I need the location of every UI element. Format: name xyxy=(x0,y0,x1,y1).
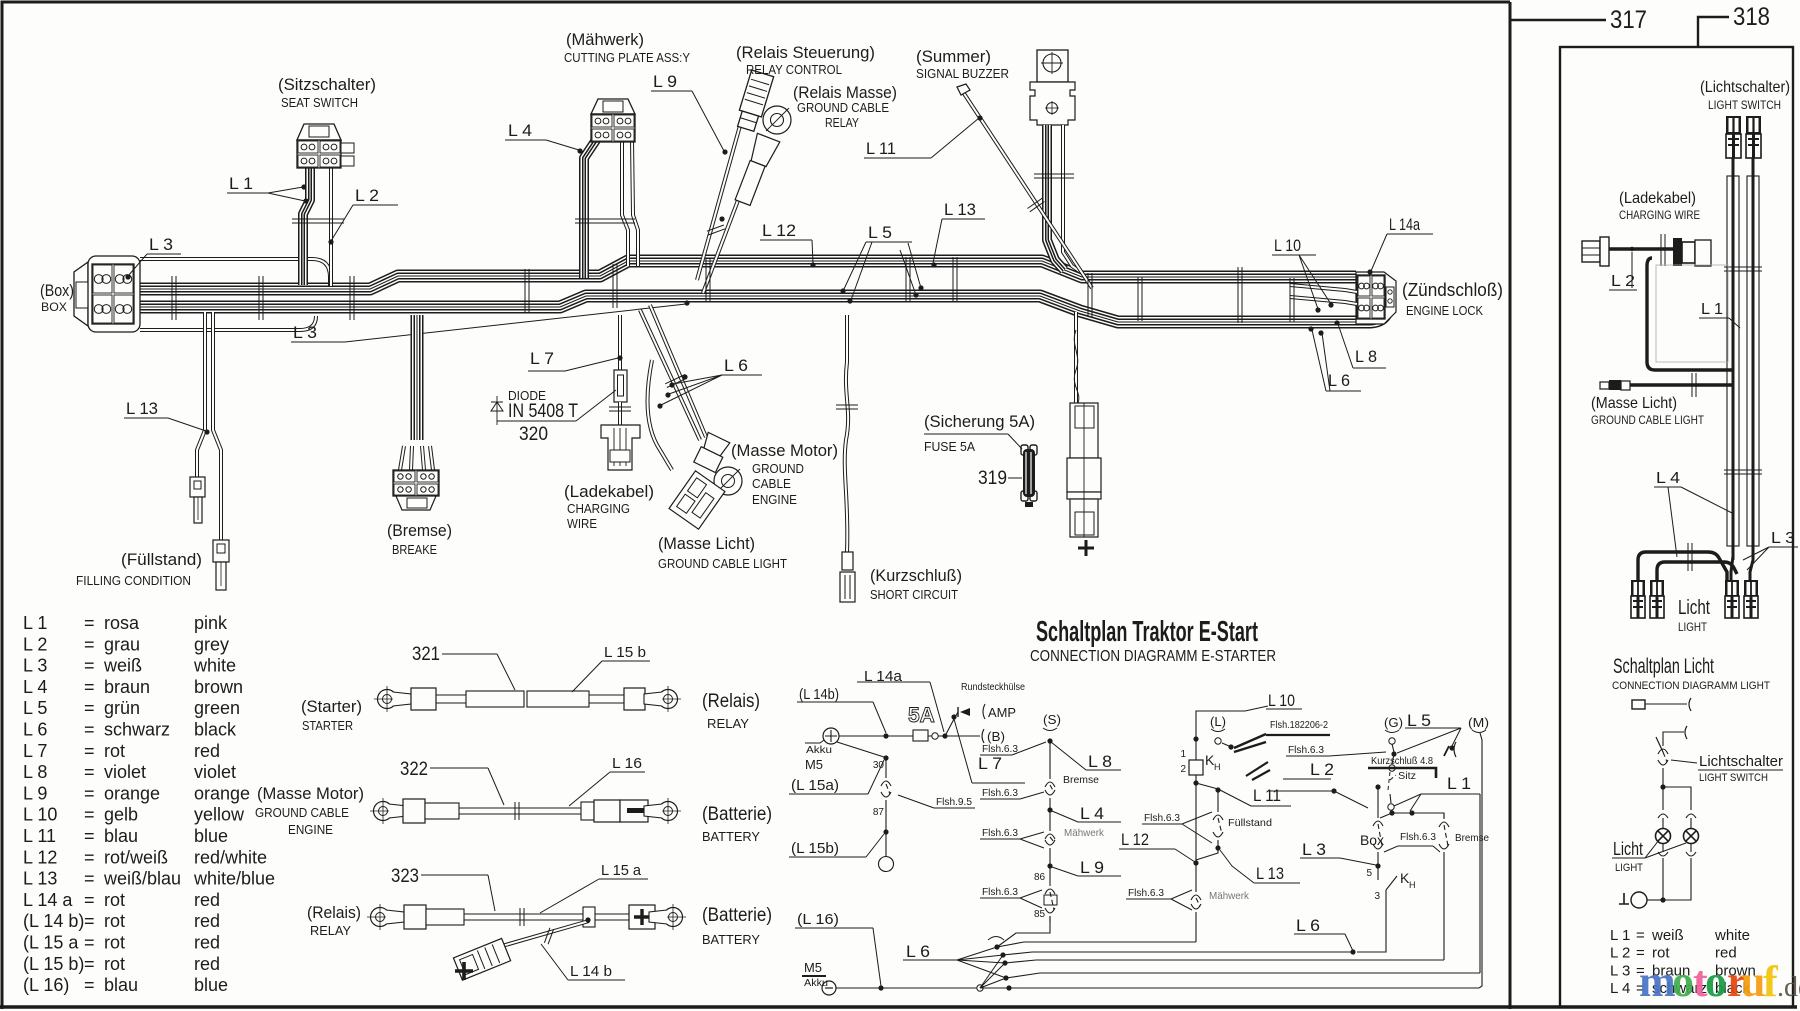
svg-text:weiß: weiß xyxy=(1651,927,1684,944)
svg-text:(L 15 b): (L 15 b) xyxy=(23,954,84,974)
svg-text:(Batterie): (Batterie) xyxy=(702,804,772,825)
svg-text:(S): (S) xyxy=(1043,712,1061,727)
svg-text:L 13: L 13 xyxy=(1256,864,1284,883)
svg-text:L 3: L 3 xyxy=(1771,530,1795,547)
svg-text:schwarz: schwarz xyxy=(104,720,170,740)
svg-text:(Relais Steuerung): (Relais Steuerung) xyxy=(736,43,875,62)
svg-text:(Ladekabel): (Ladekabel) xyxy=(564,482,654,501)
svg-text:L 14 a: L 14 a xyxy=(23,890,73,910)
svg-text:(L 14b): (L 14b) xyxy=(799,686,839,703)
svg-text:L 11: L 11 xyxy=(1253,786,1281,805)
svg-text:L 6: L 6 xyxy=(23,720,47,740)
svg-text:M5: M5 xyxy=(804,960,822,975)
svg-text:violet: violet xyxy=(194,762,236,782)
svg-text:L 1: L 1 xyxy=(1701,301,1723,318)
svg-text:L 2: L 2 xyxy=(355,186,379,205)
svg-text:yellow: yellow xyxy=(194,805,245,825)
svg-text:BREAKE: BREAKE xyxy=(392,543,437,557)
svg-text:rot: rot xyxy=(104,890,125,910)
svg-text:weiß: weiß xyxy=(103,656,142,676)
svg-text:SIGNAL BUZZER: SIGNAL BUZZER xyxy=(916,67,1009,81)
svg-text:L 1: L 1 xyxy=(23,613,47,633)
svg-text:L 2: L 2 xyxy=(1610,945,1630,962)
svg-text:L 7: L 7 xyxy=(23,741,47,761)
svg-text:(Mähwerk): (Mähwerk) xyxy=(566,30,644,49)
svg-text:L 3: L 3 xyxy=(23,656,47,676)
svg-text:L 1: L 1 xyxy=(1610,927,1630,944)
svg-text:L 15 b: L 15 b xyxy=(604,644,646,661)
svg-text:braun: braun xyxy=(104,677,150,697)
svg-text:SHORT CIRCUIT: SHORT CIRCUIT xyxy=(870,588,958,602)
svg-text:STARTER: STARTER xyxy=(302,719,353,733)
svg-text:blue: blue xyxy=(194,975,228,995)
svg-text:AMP: AMP xyxy=(988,705,1016,720)
svg-text:rot: rot xyxy=(104,954,125,974)
svg-text:GROUND CABLE: GROUND CABLE xyxy=(255,806,349,820)
svg-text:blau: blau xyxy=(104,826,138,846)
svg-text:black: black xyxy=(194,720,237,740)
svg-text:o: o xyxy=(1705,957,1727,1006)
svg-text:CONNECTION DIAGRAMM LIGHT: CONNECTION DIAGRAMM LIGHT xyxy=(1612,680,1770,692)
svg-text:green: green xyxy=(194,698,240,718)
svg-text:Flsh.6.3: Flsh.6.3 xyxy=(982,887,1018,898)
svg-text:L 4: L 4 xyxy=(1080,804,1104,823)
svg-text:(L 15b): (L 15b) xyxy=(791,840,839,857)
svg-text:L 15 a: L 15 a xyxy=(601,862,642,879)
svg-text:u: u xyxy=(1741,957,1765,1006)
svg-text:L 5: L 5 xyxy=(23,698,47,718)
svg-text:L 2: L 2 xyxy=(1611,273,1635,290)
svg-text:Mähwerk: Mähwerk xyxy=(1064,827,1105,839)
svg-text:L 3: L 3 xyxy=(293,323,317,342)
svg-text:L 8: L 8 xyxy=(1355,347,1377,366)
svg-text:5A: 5A xyxy=(908,704,935,727)
svg-text:GROUND CABLE LIGHT: GROUND CABLE LIGHT xyxy=(658,557,787,571)
svg-text:1: 1 xyxy=(1180,749,1186,760)
svg-text:white: white xyxy=(1714,927,1750,944)
svg-text:LIGHT SWITCH: LIGHT SWITCH xyxy=(1699,772,1768,784)
svg-text:CUTTING PLATE ASS:Y: CUTTING PLATE ASS:Y xyxy=(564,51,691,65)
svg-text:L 9: L 9 xyxy=(653,72,677,91)
svg-text:CONNECTION DIAGRAMM E-STARTER: CONNECTION DIAGRAMM E-STARTER xyxy=(1030,648,1276,665)
svg-text:L 14 b: L 14 b xyxy=(570,963,612,980)
svg-text:red: red xyxy=(194,890,220,910)
svg-text:L 6: L 6 xyxy=(1296,916,1320,935)
svg-text:weiß/blau: weiß/blau xyxy=(103,869,181,889)
svg-text:GROUND CABLE LIGHT: GROUND CABLE LIGHT xyxy=(1591,413,1705,427)
svg-text:Bremse: Bremse xyxy=(1063,774,1099,786)
svg-text:L 3: L 3 xyxy=(1610,962,1630,979)
svg-text:=: = xyxy=(84,954,95,974)
svg-text:=: = xyxy=(84,975,95,995)
svg-text:=: = xyxy=(84,613,95,633)
svg-text:320: 320 xyxy=(519,424,548,445)
svg-text:(L 16): (L 16) xyxy=(797,911,839,928)
svg-text:ENGINE: ENGINE xyxy=(752,493,797,507)
svg-text:317: 317 xyxy=(1610,6,1647,34)
svg-text:322: 322 xyxy=(400,759,428,780)
svg-text:blue: blue xyxy=(194,826,228,846)
svg-text:=: = xyxy=(84,762,95,782)
svg-text:brown: brown xyxy=(194,677,243,697)
svg-text:white: white xyxy=(193,656,236,676)
svg-text:L 8: L 8 xyxy=(1088,752,1112,771)
svg-text:L 5: L 5 xyxy=(1407,711,1431,730)
svg-text:M5: M5 xyxy=(805,757,823,772)
svg-text:(Zündschloß): (Zündschloß) xyxy=(1402,280,1503,300)
svg-text:=: = xyxy=(84,720,95,740)
svg-text:=: = xyxy=(84,634,95,654)
svg-text:L 12: L 12 xyxy=(1121,830,1149,849)
svg-text:L 4: L 4 xyxy=(1656,470,1680,487)
svg-text:Akku: Akku xyxy=(806,745,832,756)
svg-text:(Masse Motor): (Masse Motor) xyxy=(257,784,364,803)
svg-text:Schaltplan Licht: Schaltplan Licht xyxy=(1613,655,1714,678)
svg-text:LIGHT: LIGHT xyxy=(1615,862,1643,874)
svg-text:(Relais Masse): (Relais Masse) xyxy=(793,83,897,102)
svg-text:=: = xyxy=(84,847,95,867)
svg-text:(L 14 b): (L 14 b) xyxy=(23,911,84,931)
svg-text:WIRE: WIRE xyxy=(567,517,597,531)
svg-text:Sitz: Sitz xyxy=(1398,770,1416,782)
svg-text:L 13: L 13 xyxy=(126,399,158,418)
svg-text:red/white: red/white xyxy=(194,847,267,867)
svg-text:Mähwerk: Mähwerk xyxy=(1209,890,1250,902)
svg-text:321: 321 xyxy=(412,644,440,665)
svg-text:(L): (L) xyxy=(1210,714,1226,729)
svg-text:grün: grün xyxy=(104,698,140,718)
svg-text:86: 86 xyxy=(1034,872,1046,883)
svg-text:H: H xyxy=(1214,762,1221,772)
svg-text:red: red xyxy=(194,933,220,953)
svg-text:318: 318 xyxy=(1733,3,1770,31)
svg-text:87: 87 xyxy=(873,807,885,818)
svg-text:L 10: L 10 xyxy=(1274,236,1301,255)
svg-text:red: red xyxy=(194,911,220,931)
svg-text:L 8: L 8 xyxy=(23,762,47,782)
svg-text:L 3: L 3 xyxy=(1302,840,1326,859)
svg-text:(Masse Licht): (Masse Licht) xyxy=(658,534,755,553)
svg-text:=: = xyxy=(84,805,95,825)
svg-text:L 7: L 7 xyxy=(530,349,554,368)
svg-text:L 2: L 2 xyxy=(23,634,47,654)
svg-text:(B): (B) xyxy=(987,729,1005,744)
svg-text:L 6: L 6 xyxy=(906,942,930,961)
svg-text:L 12: L 12 xyxy=(762,221,796,240)
svg-text:Kurzschluß 4.8: Kurzschluß 4.8 xyxy=(1371,755,1433,767)
svg-text:=: = xyxy=(84,890,95,910)
svg-text:BOX: BOX xyxy=(41,300,67,314)
svg-text:L 11: L 11 xyxy=(23,826,56,846)
svg-text:RELAY CONTROL: RELAY CONTROL xyxy=(746,63,842,77)
svg-text:(Summer): (Summer) xyxy=(916,47,991,66)
svg-text:blau: blau xyxy=(104,975,138,995)
svg-text:ENGINE: ENGINE xyxy=(288,823,333,837)
svg-text:323: 323 xyxy=(391,866,419,887)
svg-text:=: = xyxy=(84,911,95,931)
svg-text:gelb: gelb xyxy=(104,805,138,825)
svg-text:L 10: L 10 xyxy=(1268,691,1295,710)
svg-text:(Ladekabel): (Ladekabel) xyxy=(1619,190,1696,207)
svg-text:L 14a: L 14a xyxy=(1389,215,1420,234)
svg-text:RELAY: RELAY xyxy=(310,924,352,938)
svg-text:ENGINE LOCK: ENGINE LOCK xyxy=(1406,304,1484,318)
svg-text:L 6: L 6 xyxy=(1328,371,1350,390)
svg-text:=: = xyxy=(1636,927,1645,944)
svg-text:2: 2 xyxy=(1180,764,1186,775)
svg-text:CHARGING: CHARGING xyxy=(567,502,630,516)
svg-text:CHARGING WIRE: CHARGING WIRE xyxy=(1619,208,1700,222)
svg-text:=: = xyxy=(84,933,95,953)
svg-text:=: = xyxy=(84,826,95,846)
svg-text:RELAY: RELAY xyxy=(707,716,749,731)
svg-text:orange: orange xyxy=(104,783,160,803)
svg-text:(Sitzschalter): (Sitzschalter) xyxy=(278,75,376,94)
svg-text:red: red xyxy=(194,741,220,761)
svg-text:L 13: L 13 xyxy=(944,200,976,219)
svg-text:L 13: L 13 xyxy=(23,869,57,889)
svg-text:(Relais): (Relais) xyxy=(702,691,760,712)
svg-text:rot: rot xyxy=(104,911,125,931)
svg-text:L 1: L 1 xyxy=(1447,774,1471,793)
svg-text:rot/weiß: rot/weiß xyxy=(104,847,168,867)
svg-text:white/blue: white/blue xyxy=(193,869,275,889)
svg-text:(Lichtschalter): (Lichtschalter) xyxy=(1700,79,1790,96)
svg-text:(Masse Motor): (Masse Motor) xyxy=(731,441,838,460)
svg-text:=: = xyxy=(84,698,95,718)
svg-text:L 4: L 4 xyxy=(23,677,47,697)
svg-text:85: 85 xyxy=(1034,909,1046,920)
svg-text:(Relais): (Relais) xyxy=(307,903,361,922)
svg-text:(Kurzschluß): (Kurzschluß) xyxy=(870,566,962,585)
svg-text:Licht: Licht xyxy=(1613,839,1643,859)
svg-text:(L 15a): (L 15a) xyxy=(791,777,839,794)
svg-text:BATTERY: BATTERY xyxy=(702,829,760,844)
svg-text:grey: grey xyxy=(194,634,229,654)
svg-text:(L 16): (L 16) xyxy=(23,975,69,995)
svg-text:=: = xyxy=(84,741,95,761)
svg-text:IN 5408 T: IN 5408 T xyxy=(508,401,578,422)
svg-text:(Batterie): (Batterie) xyxy=(702,905,772,926)
svg-text:Flsh.6.3: Flsh.6.3 xyxy=(1288,745,1324,756)
svg-text:L 3: L 3 xyxy=(149,235,173,254)
svg-text:L 10: L 10 xyxy=(23,805,57,825)
svg-text:grau: grau xyxy=(104,634,140,654)
svg-text:L 4: L 4 xyxy=(1610,980,1630,997)
svg-text:GROUND: GROUND xyxy=(752,462,804,476)
svg-text:pink: pink xyxy=(194,613,228,633)
svg-text:LIGHT: LIGHT xyxy=(1678,620,1708,634)
svg-text:(Sicherung 5A): (Sicherung 5A) xyxy=(924,412,1035,431)
svg-text:L 11: L 11 xyxy=(866,139,896,158)
svg-text:(G): (G) xyxy=(1384,715,1403,730)
svg-text:Flsh.6.3: Flsh.6.3 xyxy=(1128,888,1164,899)
svg-text:L 2: L 2 xyxy=(1310,760,1334,779)
svg-text:L 6: L 6 xyxy=(724,356,748,375)
svg-text:GROUND CABLE: GROUND CABLE xyxy=(797,101,889,115)
svg-text:rot: rot xyxy=(104,933,125,953)
svg-text:Lichtschalter: Lichtschalter xyxy=(1699,753,1783,770)
svg-text:3: 3 xyxy=(1374,891,1380,902)
svg-text:(Starter): (Starter) xyxy=(301,697,362,716)
svg-text:BATTERY: BATTERY xyxy=(702,932,760,947)
svg-text:rot: rot xyxy=(104,741,125,761)
svg-text:FUSE 5A: FUSE 5A xyxy=(924,440,976,454)
svg-text:Rundsteckhülse: Rundsteckhülse xyxy=(961,682,1025,693)
svg-text:Flsh.6.3: Flsh.6.3 xyxy=(982,788,1018,799)
svg-text:Box: Box xyxy=(1360,832,1384,848)
svg-text:(Masse Licht): (Masse Licht) xyxy=(1591,395,1677,412)
svg-text:(Box): (Box) xyxy=(40,281,74,300)
svg-text:=: = xyxy=(84,783,95,803)
svg-text:(Bremse): (Bremse) xyxy=(387,521,452,540)
svg-text:(L 15 a: (L 15 a xyxy=(23,933,79,953)
svg-text:Bremse: Bremse xyxy=(1455,832,1489,844)
svg-text:L 9: L 9 xyxy=(23,783,47,803)
svg-text:=: = xyxy=(84,869,95,889)
svg-text:L 7: L 7 xyxy=(978,754,1002,773)
svg-text:Füllstand: Füllstand xyxy=(1228,817,1272,829)
svg-text:=: = xyxy=(84,677,95,697)
svg-text:Flsh.6.3: Flsh.6.3 xyxy=(1400,832,1436,843)
svg-text:red: red xyxy=(194,954,220,974)
svg-text:RELAY: RELAY xyxy=(825,116,860,130)
svg-text:5: 5 xyxy=(1366,868,1372,879)
svg-text:.de: .de xyxy=(1777,972,1800,1003)
svg-text:Flsh.9.5: Flsh.9.5 xyxy=(936,797,972,808)
svg-text:o: o xyxy=(1672,957,1694,1006)
svg-text:=: = xyxy=(84,656,95,676)
svg-text:(Füllstand): (Füllstand) xyxy=(121,550,202,569)
svg-text:orange: orange xyxy=(194,783,250,803)
svg-text:FILLING CONDITION: FILLING CONDITION xyxy=(76,574,191,588)
svg-text:(M): (M) xyxy=(1468,715,1489,730)
svg-text:Flsh.6.3: Flsh.6.3 xyxy=(982,828,1018,839)
svg-text:L 9: L 9 xyxy=(1080,858,1104,877)
svg-text:Flsh.182206-2: Flsh.182206-2 xyxy=(1270,720,1328,731)
svg-text:Flsh.6.3: Flsh.6.3 xyxy=(1144,813,1180,824)
svg-text:H: H xyxy=(1409,880,1416,890)
svg-text:m: m xyxy=(1639,957,1676,1006)
svg-text:L 4: L 4 xyxy=(508,121,532,140)
svg-text:SEAT SWITCH: SEAT SWITCH xyxy=(281,96,358,110)
svg-text:L 12: L 12 xyxy=(23,847,57,867)
svg-text:LIGHT SWITCH: LIGHT SWITCH xyxy=(1708,98,1781,112)
svg-text:rosa: rosa xyxy=(104,613,140,633)
svg-text:L 5: L 5 xyxy=(868,223,892,242)
svg-text:L 1: L 1 xyxy=(229,174,253,193)
svg-text:violet: violet xyxy=(104,762,146,782)
svg-text:319: 319 xyxy=(978,468,1007,489)
svg-text:Schaltplan Traktor E-Start: Schaltplan Traktor E-Start xyxy=(1036,616,1258,648)
svg-text:Licht: Licht xyxy=(1678,597,1710,619)
svg-text:CABLE: CABLE xyxy=(752,477,791,491)
svg-text:L 16: L 16 xyxy=(612,755,642,772)
